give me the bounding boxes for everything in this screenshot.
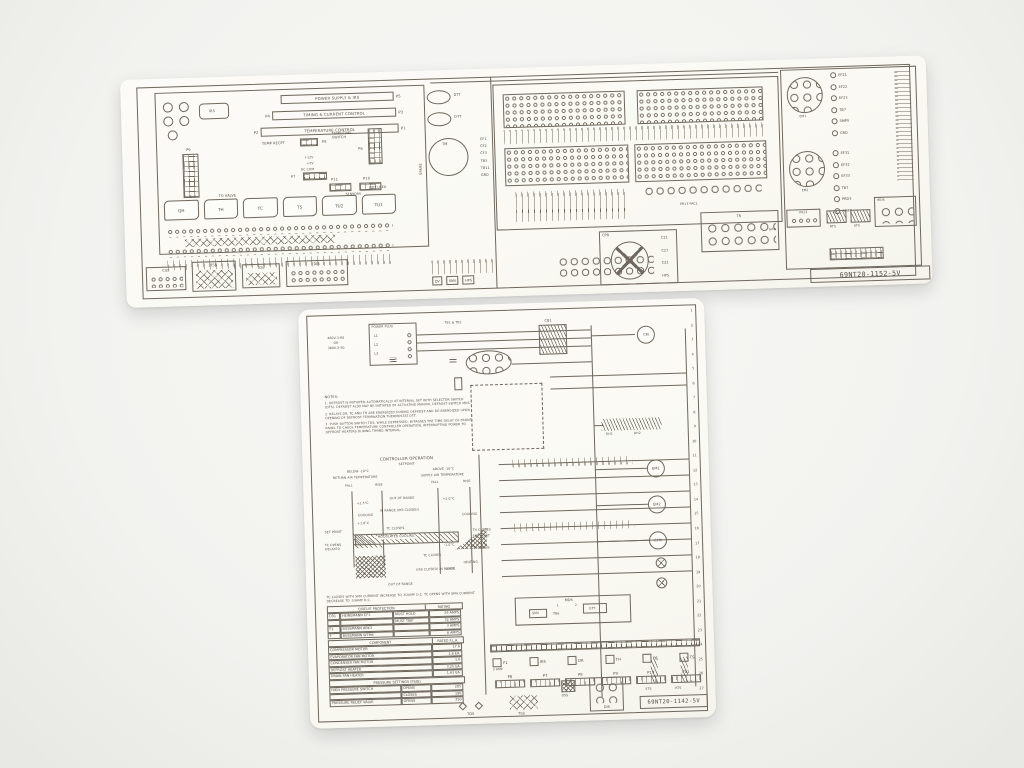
tss-box: TSS <box>192 261 237 292</box>
spare-label: SPARE <box>419 163 423 175</box>
tr-label: TR <box>736 214 741 218</box>
temp-plus10: +1.0°C <box>357 522 369 526</box>
valve-box: HPS <box>463 275 475 284</box>
plus5v-label: +5V <box>307 162 314 166</box>
to-valve-label: TO VALVE <box>219 194 237 199</box>
dis-label: DIS <box>287 261 347 267</box>
wire-terminal: GRD <box>832 130 850 137</box>
dis-label: DIS <box>591 705 623 710</box>
sts-sensor-box <box>850 209 870 223</box>
wire-label: CF3 <box>480 151 489 155</box>
p7-label: P7 <box>291 175 296 179</box>
rung-number: 19 <box>696 570 700 574</box>
wire-terminal: SMP5 <box>832 118 850 125</box>
dss-box <box>561 680 575 692</box>
cpr-wire-labels: C21C23C22HPS <box>661 235 669 277</box>
table-rating-header: RATED F.L.A. <box>433 637 463 643</box>
dh2-label: DH2 <box>634 432 641 436</box>
ground-symbol <box>449 357 456 362</box>
plug-pins <box>406 332 415 360</box>
mds-pos-1: 1 <box>557 604 559 608</box>
wire-terminal: EF31 <box>832 150 850 157</box>
table-cell: 6 AMPS <box>430 629 462 636</box>
p10-label: P10 <box>363 176 370 180</box>
tss-label: TSS <box>193 263 235 268</box>
motor-label: EM2 <box>653 502 661 506</box>
rts-sensor-box <box>826 210 846 224</box>
em2-label: EM2 <box>802 189 809 193</box>
ctrl-tc-closes-2: TC CLOSES <box>423 554 441 558</box>
relay-coil: IRS <box>529 657 546 666</box>
temp-time-switch-label: TEMP/TIME SWITCH <box>332 131 364 140</box>
rung-number: 26 <box>699 671 703 675</box>
p11-label: P11 <box>331 177 338 181</box>
table-body: HIGH PRESSURE SWITCHOPENS285CLOSES190PRE… <box>329 683 466 707</box>
connector-tag: P3 <box>398 109 403 114</box>
rts-label: RTS <box>830 225 836 229</box>
rts-resistor <box>680 657 688 683</box>
ctrl-out-of-range-bottom: OUT OF RANGE <box>388 583 413 587</box>
table-cell: 350 <box>432 696 464 703</box>
ctrl-fall-left: FALL <box>345 484 353 488</box>
terminal-block <box>504 145 629 187</box>
mds-pos-2: 2 <box>575 604 577 608</box>
pa13-label: PA13 <box>787 211 819 216</box>
rung-number: 24 <box>698 642 702 646</box>
rung-number: 9 <box>694 424 696 428</box>
terminal-block <box>503 91 626 129</box>
wire-terminal: TB7 <box>834 185 852 192</box>
tb1-tb2-label: TB1 & TB2 <box>444 321 461 325</box>
ctrl-tc-closes: TC CLOSES <box>386 527 404 531</box>
dtt-label: DTT <box>589 607 596 611</box>
terminal-cluster <box>791 217 818 226</box>
ctrl-tc-opens: TC OPENS DELAYED <box>325 544 349 552</box>
ctrl-set-point-right: SET POINT <box>473 534 490 538</box>
rung-number: 12 <box>693 468 697 472</box>
connector-tag: P1 <box>401 125 406 130</box>
wire-label: CF1 <box>480 137 489 141</box>
table-cell: OPENS <box>402 697 432 704</box>
temp-recpt-connector <box>300 138 318 147</box>
dtt-label: DTT <box>454 93 461 97</box>
table-cell: F <box>328 632 341 639</box>
ctrl-set-point-left: SET POINT <box>325 531 342 535</box>
rung-number: 23 <box>698 628 702 632</box>
rung-number: 21 <box>697 599 701 603</box>
wire-terminal: EF22 <box>830 83 848 90</box>
dis-box: DIS <box>589 677 624 712</box>
rung-number: 1 <box>690 308 692 312</box>
tds-label: TDS <box>243 265 279 270</box>
wire-terminal: TB7 <box>831 107 849 114</box>
temp-axis <box>351 491 354 567</box>
tm-label: TM <box>442 142 447 146</box>
ctrl-cooling-right: COOLING <box>462 513 477 517</box>
wds-label: WDS <box>877 199 885 203</box>
ground-symbol <box>389 357 396 362</box>
wire-label: TB11 <box>481 166 490 170</box>
rung-number: 27 <box>699 686 703 690</box>
irs-label: IRS <box>209 109 215 113</box>
smv-label: SMV <box>532 612 539 616</box>
ctrl-in-range: IN RANGE (IRS CLOSED) <box>380 508 419 513</box>
wire-terminal: EF21 <box>830 72 848 79</box>
rung-number: 2 <box>691 323 693 327</box>
rung-number: 20 <box>696 584 700 588</box>
p8-label: P8 <box>322 140 327 144</box>
sts-label: STS <box>645 688 651 692</box>
p9-label: P9 <box>186 148 191 152</box>
dis-box: DIS <box>286 259 349 287</box>
ctrl-th-closes: TH CLOSES <box>473 528 491 532</box>
p7-connector <box>303 172 327 181</box>
tds-label: TDS <box>467 712 474 716</box>
part-number-box: 69NT20-1152-5V <box>810 265 930 283</box>
controller-operation-diagram: CONTROLLER OPERATION SETPOINT BELOW -10°… <box>322 454 494 595</box>
rung-number: 22 <box>697 613 701 617</box>
dss-label: DSS <box>562 694 569 698</box>
dtt-label: DTT <box>454 115 461 119</box>
temp-plus25: +2.5°C <box>357 502 369 506</box>
valve-box: QV <box>432 276 442 285</box>
table-cell <box>394 630 430 638</box>
pb13-label: PB13 PAC1 <box>680 202 698 206</box>
dh1-label: DH1 <box>606 433 613 437</box>
p9-connector <box>182 154 199 198</box>
power-plug-label: POWER PLUG <box>372 325 394 329</box>
ctrl-cooling-left: COOLING <box>358 514 373 518</box>
rung-number: 25 <box>698 657 702 661</box>
tss-diamond-cluster <box>510 695 538 710</box>
part-number-box: 69NT20-1142-5V <box>640 694 708 709</box>
motor-label: EM1 <box>652 466 660 470</box>
rung-number: 8 <box>693 410 695 414</box>
component-pill: TC <box>243 197 278 218</box>
fuse-box <box>454 377 462 390</box>
rung-number: 10 <box>692 439 696 443</box>
terminal-block <box>637 86 764 124</box>
em1-label: EM1 <box>799 115 806 119</box>
rung-number: 18 <box>695 555 699 559</box>
relay-coil: F1 <box>492 658 507 667</box>
power-line-label: L3 <box>374 352 378 356</box>
pressure-settings-table: PRESSURE SETTINGS (PSIG) HIGH PRESSURE S… <box>329 676 466 707</box>
power-line-label: L1 <box>374 334 378 338</box>
pa13-box: PA13 <box>786 209 821 228</box>
rung-number: 3 <box>691 337 693 341</box>
cb1-label: CB1 <box>544 318 551 322</box>
motor-label: CM <box>643 333 649 337</box>
component-pill: TS <box>282 196 317 217</box>
part-number: 69NT20-1152-5V <box>840 269 901 279</box>
component-pill: TU2 <box>322 195 357 216</box>
temp-plus20: +2.0°C <box>443 497 455 501</box>
em1-wire-list: EF21EF22EF23TB7SMP5GRD <box>830 72 850 137</box>
component-pill: QH <box>164 200 199 221</box>
diamond-cluster <box>246 272 277 285</box>
tb6-label: TB6 <box>553 612 559 616</box>
terminal-block <box>634 140 767 182</box>
rung-number: 14 <box>694 497 698 501</box>
ctrl-out-of-range-top: OUT OF RANGE <box>390 497 415 501</box>
ctrl-rise-right: RISE <box>463 480 470 484</box>
power-line-label: L2 <box>374 343 378 347</box>
wire-terminal: PRD3 <box>834 196 852 203</box>
sts-resistor <box>650 657 658 683</box>
cpr-label: CPR <box>602 233 609 237</box>
notes-list: 1. DEFROST IS INITIATED AUTOMATICALLY AT… <box>325 397 474 434</box>
wds-box: WDS <box>874 196 917 227</box>
smv-box: SMV <box>529 609 547 619</box>
connector-tag: P5 <box>396 93 401 98</box>
relay-coil: TH <box>605 655 621 664</box>
irs-relay-box: IRS <box>199 103 229 120</box>
rung-number: 15 <box>694 512 698 516</box>
mds-label: MDS <box>565 598 573 602</box>
rung-number: 7 <box>693 395 695 399</box>
wire-terminal: EF33 <box>833 173 851 180</box>
bottom-schematic-sheet: 460V-3-60 OR 380V-3-50 POWER PLUG L1L2L3… <box>298 298 716 729</box>
rts-label: RTS <box>675 687 681 691</box>
ctrl-heating: HEATING <box>464 561 478 565</box>
part-number: 69NT20-1142-5V <box>647 698 700 706</box>
photo-background: { "scene": { "bg": "#f2f2ef", "sheet": "… <box>0 0 1024 768</box>
wire-drop-field <box>516 189 627 222</box>
terminal-strip <box>829 247 883 261</box>
diamond-cluster <box>196 270 234 289</box>
sts-label: STS <box>854 224 860 228</box>
connector-tag: P2 <box>254 130 259 135</box>
p6-label: P6 <box>358 147 363 151</box>
rung-number: 6 <box>692 381 694 385</box>
rung-number: 11 <box>692 454 696 458</box>
valve-box-row: QVSMVHPS <box>432 275 474 285</box>
tr-transformer-box: TR <box>700 210 779 252</box>
wire-label: GRD <box>481 173 490 177</box>
grd-label: GRD <box>769 228 776 232</box>
wire-label: CF2 <box>480 144 489 148</box>
css-box: CSS <box>146 266 187 291</box>
component-rating-table: COMPONENT RATED F.L.A. COMPRESSOR MOTOR1… <box>328 636 465 680</box>
top-schematic-sheet: IRS POWER SUPPLY & IRS P5 P4 TIMING & CU… <box>120 55 933 308</box>
controller-dashed-box <box>470 383 544 451</box>
note-item: 3. PUSH BUTTON SWITCH TDS, WHILE DEPRESS… <box>325 418 473 434</box>
wire-stub-column <box>894 70 913 180</box>
valve-box: SMV <box>446 276 459 285</box>
ctrl-fall-right: FALL <box>431 481 439 485</box>
circuit-protection-table: CIRCUIT PROTECTION RATING CB1HEINEMANN C… <box>327 602 464 639</box>
connector-tag: P4 <box>265 113 270 118</box>
wire-label: HPS <box>662 273 669 277</box>
temp-recpt-label: TEMP RECPT <box>262 141 285 146</box>
ctrl-in-range-2: (IRS CLOSED) IN RANGE <box>414 567 458 572</box>
plus12v-label: +12V <box>304 156 313 160</box>
pulsation-block <box>355 556 386 579</box>
terminal-cluster <box>290 268 345 284</box>
ctrl-above: ABOVE -10°C <box>433 467 455 471</box>
wire-label: TB3 <box>481 158 490 162</box>
plug-connector: P7 <box>530 672 560 687</box>
wire-terminal: EF23 <box>831 95 849 102</box>
p11-connector <box>329 183 351 192</box>
table-body: COMPRESSOR MOTOR17.6EVAPORATOR FAN MOTOR… <box>328 643 465 680</box>
rung-number: 16 <box>695 526 699 530</box>
ctrl-supply-air: SUPPLY AIR TEMPERATURE <box>421 473 464 478</box>
temp-time-connector <box>368 128 383 164</box>
rung-number: 13 <box>693 483 697 487</box>
notes-block: NOTES: 1. DEFROST IS INITIATED AUTOMATIC… <box>325 391 474 437</box>
cpr-motor-symbol <box>610 241 649 280</box>
ctrl-th-opens: TH OPENS <box>473 546 490 550</box>
cf-wire-labels: CF1CF2CF3TB3TB11GRD <box>480 137 490 177</box>
css-label: CSS <box>147 268 185 273</box>
wire-label: C22 <box>662 261 669 265</box>
dis-circle-cluster <box>593 681 622 704</box>
relay-coil: DR <box>567 656 583 665</box>
wire-label: C21 <box>661 235 668 239</box>
tds-box: TDS <box>242 263 281 288</box>
em2-wire-list: EF31EF32EF33TB7PRD3SMP5 <box>832 150 852 215</box>
component-pill: TH <box>203 198 238 219</box>
transformer-windings <box>706 220 777 249</box>
rung-number: 17 <box>695 541 699 545</box>
terminal-cluster <box>150 275 183 288</box>
terminal-cluster <box>879 205 914 224</box>
wire-terminal: EF32 <box>833 161 851 168</box>
wire-drop-field <box>432 259 494 275</box>
plug-connector: P6 <box>495 673 525 688</box>
tss-label: TSS <box>518 711 525 715</box>
rung-number: 4 <box>692 352 694 356</box>
defrost-heater-resistors <box>601 417 661 431</box>
temp-minus10: -1.0°C <box>444 543 454 547</box>
fuse-rating-label: 3 AMP <box>493 668 503 672</box>
not-used-label: NOT USED <box>369 186 386 190</box>
component-pill: TU1 <box>361 194 396 215</box>
power-line-labels: L1L2L3 <box>374 334 379 356</box>
ctrl-rise-left: RISE <box>375 484 382 488</box>
dtt-box: DTT <box>583 603 607 614</box>
table-body: CB1HEINEMANN CF3MUST HOLD29 AMPSMUST TRI… <box>327 609 464 639</box>
rung-number: 5 <box>692 366 694 370</box>
wire-label: C23 <box>661 248 668 252</box>
ctrl-return-air: RETURN AIR TEMPERATURE <box>333 476 378 481</box>
ctrl-below: BELOW -10°C <box>347 470 369 474</box>
